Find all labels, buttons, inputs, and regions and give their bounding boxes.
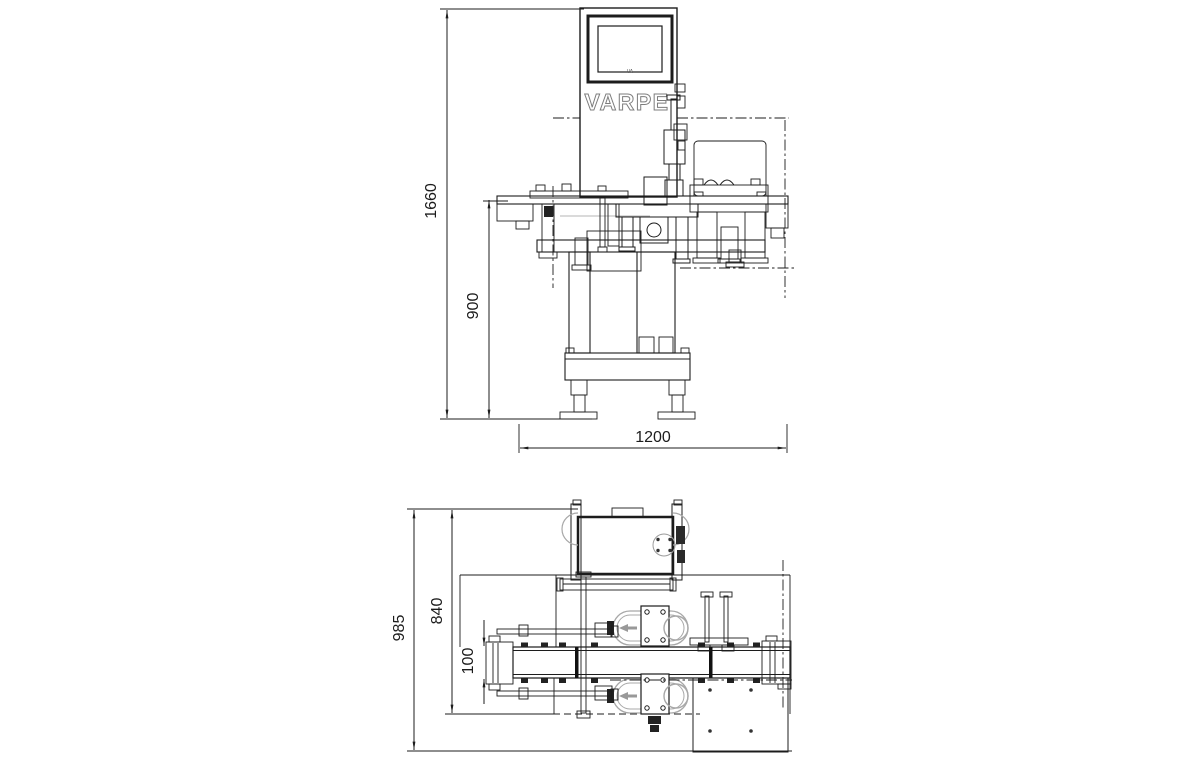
front-dim-overall-width: 1200 (519, 424, 787, 453)
left-foot (560, 380, 597, 419)
front-overall-width-label: 1200 (635, 429, 671, 446)
front-view: 1660 900 1200 VA VARPE (423, 8, 795, 453)
plan-belt-width-label: 100 (460, 648, 477, 675)
front-dim-belt-height: 900 (465, 200, 508, 418)
sensor-posts (690, 592, 748, 651)
drive-motor-upper (607, 606, 688, 646)
conveyor-assembly (497, 177, 788, 271)
right-foot (658, 380, 695, 419)
drawing-canvas: 1660 900 1200 VA VARPE (0, 0, 1200, 766)
touchscreen (598, 26, 662, 72)
plan-dim-belt-width: 100 (460, 620, 484, 704)
head-housing (578, 517, 673, 574)
mid-rollers (572, 204, 641, 271)
belt-left-end (486, 636, 513, 690)
machine-base (560, 252, 695, 419)
plan-view: 985 840 100 (391, 500, 792, 752)
belt-right-end (762, 636, 791, 689)
belt-direction-arrow (619, 624, 637, 632)
front-overall-height-label: 1660 (423, 183, 440, 219)
plan-belt (486, 636, 791, 690)
left-column-arc (562, 513, 578, 545)
plan-centre-lines (610, 560, 792, 710)
infeed-bracket (497, 204, 533, 229)
technical-drawing: 1660 900 1200 VA VARPE (0, 0, 1200, 766)
weigh-cell-assembly (616, 177, 698, 263)
plan-frame-depth-label: 840 (429, 598, 446, 625)
right-leg (637, 252, 675, 353)
front-belt-height-label: 900 (465, 293, 482, 320)
belt-direction-arrow (619, 692, 637, 700)
brand-logo: VARPE (584, 89, 669, 115)
mounting-plate (693, 678, 788, 752)
plan-dim-overall-depth: 985 (391, 509, 792, 751)
front-dim-overall-height: 1660 (423, 9, 592, 419)
base-frame (565, 353, 690, 380)
guide-adjuster-lower (497, 686, 618, 700)
plan-overall-depth-label: 985 (391, 615, 408, 642)
adjuster-arm (530, 184, 628, 252)
screen-badge: VA (627, 69, 634, 75)
reject-bin-frame (694, 141, 766, 196)
left-hanger (539, 204, 557, 258)
drive-motor-lower (607, 674, 688, 732)
guide-adjuster-upper (497, 623, 618, 637)
